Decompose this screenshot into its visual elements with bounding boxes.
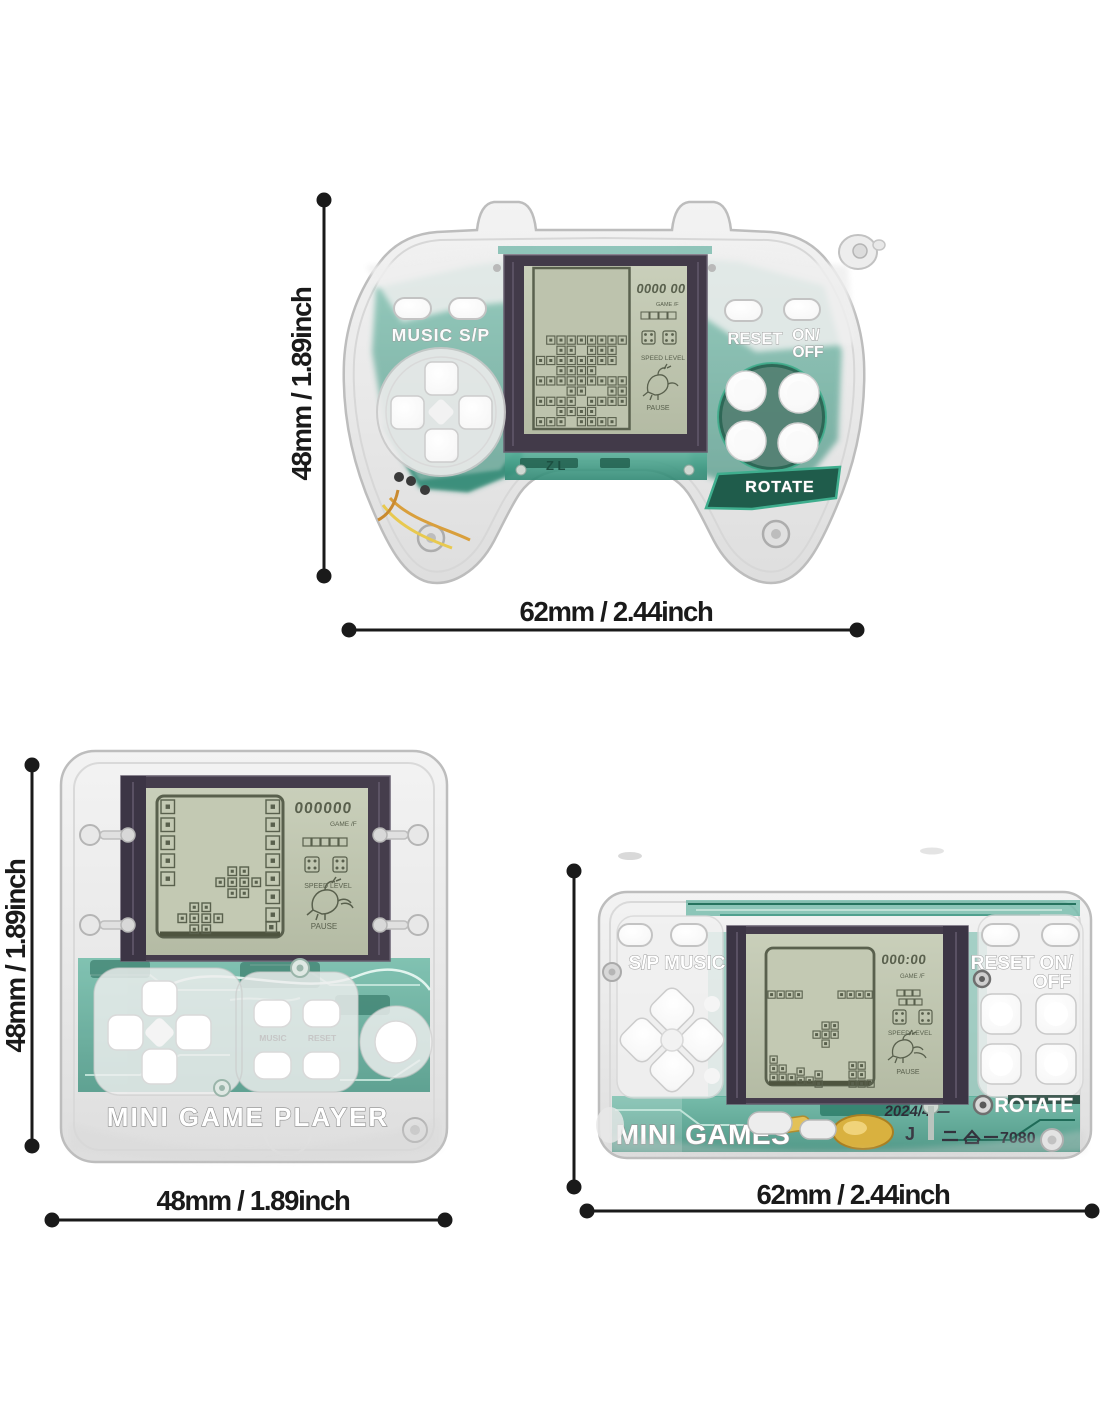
svg-text:MUSIC: MUSIC [259, 1033, 286, 1043]
svg-text:ROTATE: ROTATE [994, 1095, 1073, 1117]
svg-text:ROTATE: ROTATE [745, 479, 814, 496]
svg-text:48mm / 1.89inch: 48mm / 1.89inch [0, 859, 31, 1052]
svg-text:Z L: Z L [546, 458, 566, 473]
svg-text:48mm / 1.89inch: 48mm / 1.89inch [286, 287, 317, 480]
svg-text:MUSIC S/P: MUSIC S/P [392, 325, 490, 345]
svg-text:GAME /F: GAME /F [330, 821, 357, 828]
svg-text:62mm / 2.44inch: 62mm / 2.44inch [520, 596, 713, 627]
svg-text:RESET: RESET [727, 330, 782, 348]
svg-text:0000 00: 0000 00 [636, 281, 687, 296]
svg-text:OFF: OFF [1033, 972, 1071, 993]
svg-text:2024/4/—: 2024/4/— [883, 1103, 951, 1120]
svg-text:PAUSE: PAUSE [311, 922, 338, 931]
svg-text:GAME /F: GAME /F [656, 302, 679, 308]
svg-text:PAUSE: PAUSE [896, 1069, 920, 1076]
svg-text:J: J [905, 1124, 915, 1144]
svg-text:ON/: ON/ [792, 327, 820, 344]
svg-text:000000: 000000 [294, 800, 353, 817]
svg-text:000:00: 000:00 [881, 952, 928, 967]
svg-text:PAUSE: PAUSE [646, 405, 670, 412]
svg-text:48mm / 1.89inch: 48mm / 1.89inch [157, 1185, 350, 1216]
svg-text:OFF: OFF [793, 344, 824, 361]
svg-text:GAME /F: GAME /F [900, 974, 925, 980]
svg-text:S/P MUSIC: S/P MUSIC [629, 953, 726, 974]
svg-text:RESET: RESET [308, 1033, 337, 1043]
svg-text:MINI GAME PLAYER: MINI GAME PLAYER [107, 1102, 389, 1132]
svg-text:SPEED LEVEL: SPEED LEVEL [641, 355, 685, 362]
svg-text:62mm / 2.44inch: 62mm / 2.44inch [757, 1179, 950, 1210]
